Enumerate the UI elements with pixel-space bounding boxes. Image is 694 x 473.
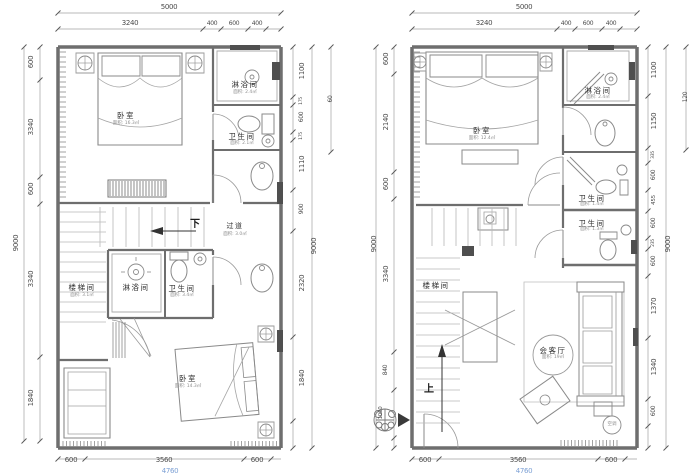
dim-left-total: 9000	[370, 224, 378, 264]
dim-right-seg: 900	[298, 189, 306, 229]
dim-right-seg: 600	[650, 241, 658, 281]
dim-right-seg: 1340	[650, 347, 658, 387]
room-label-bedroom-lower: 卧室	[168, 374, 208, 383]
room-area: 面积: 1.4㎡	[572, 202, 612, 208]
room-area: 面积: 16.3㎡	[106, 121, 146, 127]
ac-unit-label: 空调	[600, 422, 624, 428]
dim-right-total: 9000	[664, 224, 672, 264]
dim-bottom-seg: 600	[237, 456, 277, 464]
room-area: 面积: 3.1㎡	[62, 293, 102, 299]
dim-right-extra: 60	[327, 79, 335, 119]
dim-left-seg: 1060	[377, 393, 385, 433]
room-label-stairwell: 楼梯间	[62, 283, 102, 292]
room-label-stairwell: 楼梯间	[416, 281, 456, 290]
dim-top-seg: 400	[596, 20, 626, 28]
dim-top-total-right-plan: 5000	[504, 3, 544, 11]
dim-left-seg: 600	[382, 164, 390, 204]
dim-left-seg: 3340	[27, 259, 35, 299]
room-label-bathroom-upper: 卫生间	[222, 132, 262, 141]
dim-left-total: 9000	[12, 223, 20, 263]
room-area: 面积: 14.3㎡	[168, 384, 208, 390]
dim-right-extra: 120	[682, 77, 690, 117]
armchair	[520, 376, 570, 424]
dim-left-seg: 3340	[382, 254, 390, 294]
dim-left-seg: 600	[27, 169, 35, 209]
room-area: 面积: 19㎡	[533, 355, 573, 361]
dim-top-total-left-plan: 5000	[149, 3, 189, 11]
plan-linework	[22, 11, 689, 462]
dim-top-seg: 3240	[464, 19, 504, 27]
dim-top-seg: 400	[242, 20, 272, 28]
dim-bottom-seg: 600	[591, 456, 631, 464]
room-area: 面积: 1.3㎡	[572, 227, 612, 233]
room-label-shower-upper: 淋浴间	[225, 80, 265, 89]
dim-right-seg: 1370	[650, 286, 658, 326]
room-area: 面积: 2.1㎡	[222, 141, 262, 147]
dim-left-seg: 600	[382, 39, 390, 79]
dim-bottom-total: 4760	[150, 467, 190, 473]
room-area: 面积: 3.0㎡	[215, 232, 255, 238]
stair-up-note: 上	[424, 384, 434, 395]
dim-left-seg: 2140	[382, 102, 390, 142]
dim-right-seg: 1100	[650, 50, 658, 90]
dim-right-seg: 600	[650, 391, 658, 431]
room-label-bedroom: 卧室	[462, 126, 502, 135]
room-label-shower-mid: 淋浴间	[116, 283, 156, 292]
room-label-bedroom-upper: 卧室	[106, 111, 146, 120]
dim-bottom-total: 4760	[504, 467, 544, 473]
dim-bottom-seg: 600	[51, 456, 91, 464]
room-area: 面积: 2.4㎡	[578, 95, 618, 101]
stair-down-note: 下	[190, 219, 200, 230]
entry-arrow-icon	[398, 413, 410, 427]
dim-right-seg: 1840	[298, 358, 306, 398]
dim-right-total: 9000	[310, 226, 318, 266]
dim-bottom-seg: 600	[405, 456, 445, 464]
room-area: 面积: 3.4㎡	[162, 293, 202, 299]
dim-left-seg: 3340	[27, 107, 35, 147]
room-label-living-room: 会客厅	[533, 346, 573, 355]
dim-bottom-seg: 3560	[498, 456, 538, 464]
room-area: 面积: 12.4㎡	[462, 136, 502, 142]
room-area: 面积: 2.4㎡	[225, 90, 265, 96]
dim-left-seg: 840	[382, 350, 390, 390]
dim-top-seg: 3240	[110, 19, 150, 27]
dim-left-seg: 1840	[27, 378, 35, 418]
dim-bottom-seg: 3560	[144, 456, 184, 464]
room-label-shower: 淋浴间	[578, 86, 618, 95]
dim-left-seg: 600	[27, 42, 35, 82]
floor-plan-sheet: 5000 3240 400 600 400 600 3340 600 3340 …	[0, 0, 694, 473]
room-label-bathroom-mid: 卫生间	[162, 284, 202, 293]
room-label-corridor: 过道	[215, 222, 255, 231]
dim-right-seg: 2320	[298, 263, 306, 303]
floor-plan-drawing	[0, 0, 694, 473]
dim-right-seg: 1110	[298, 144, 306, 184]
